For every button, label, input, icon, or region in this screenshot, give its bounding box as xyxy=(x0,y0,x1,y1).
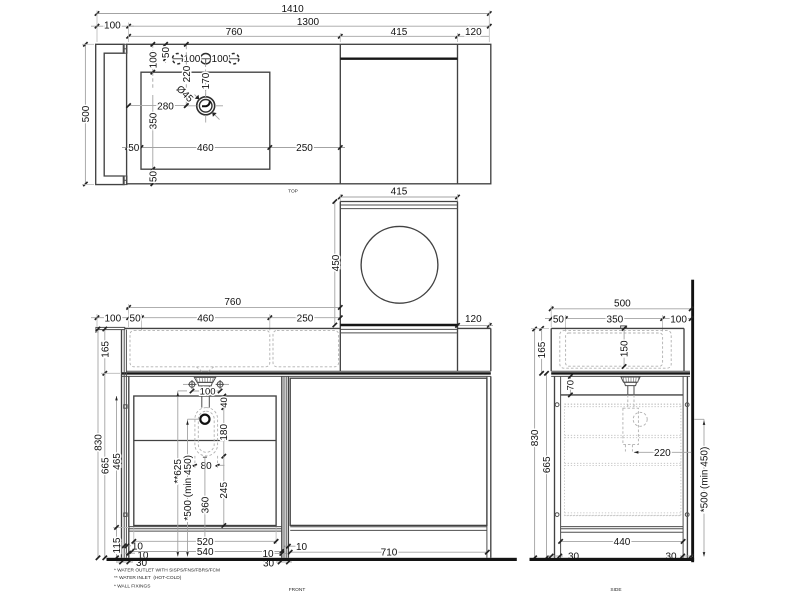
svg-text:830: 830 xyxy=(530,429,541,446)
svg-text:760: 760 xyxy=(224,297,241,308)
svg-text:10: 10 xyxy=(296,542,308,553)
svg-text:100: 100 xyxy=(200,387,216,398)
svg-text:180: 180 xyxy=(219,424,230,441)
svg-text:1300: 1300 xyxy=(297,17,320,28)
svg-text:* WALL FIXINGS: * WALL FIXINGS xyxy=(114,584,150,590)
svg-text:80: 80 xyxy=(201,461,213,472)
svg-text:50: 50 xyxy=(128,143,140,154)
svg-text:50: 50 xyxy=(553,314,565,325)
svg-text:*500 (min 450): *500 (min 450) xyxy=(183,455,194,521)
svg-text:440: 440 xyxy=(614,537,631,548)
svg-text:1410: 1410 xyxy=(281,4,304,15)
svg-text:30: 30 xyxy=(568,552,580,563)
svg-text:*500 (min 450): *500 (min 450) xyxy=(700,447,711,513)
svg-text:* WATER OUTLET WITH SISPS/FNS/: * WATER OUTLET WITH SISPS/FNS/FBRS/FCM xyxy=(114,568,220,574)
svg-text:415: 415 xyxy=(391,187,408,198)
svg-text:500: 500 xyxy=(614,299,631,310)
svg-text:FRONT: FRONT xyxy=(289,587,306,593)
svg-text:250: 250 xyxy=(297,313,314,324)
svg-text:30: 30 xyxy=(665,552,677,563)
svg-text:830: 830 xyxy=(94,434,105,451)
svg-text:710: 710 xyxy=(381,548,398,559)
svg-text:665: 665 xyxy=(100,457,111,474)
svg-text:250: 250 xyxy=(296,143,313,154)
svg-text:100: 100 xyxy=(212,54,229,65)
svg-text:100: 100 xyxy=(670,314,687,325)
svg-text:TOP: TOP xyxy=(288,189,298,195)
svg-text:50: 50 xyxy=(130,313,142,324)
svg-text:350: 350 xyxy=(607,314,624,325)
svg-text:760: 760 xyxy=(226,27,243,38)
svg-text:460: 460 xyxy=(197,143,214,154)
svg-text:245: 245 xyxy=(219,482,230,499)
svg-text:100: 100 xyxy=(104,313,121,324)
svg-text:165: 165 xyxy=(100,341,111,358)
svg-text:220: 220 xyxy=(654,448,671,459)
svg-text:50: 50 xyxy=(148,171,159,183)
svg-text:465: 465 xyxy=(112,453,123,470)
svg-text:** WATER INLET (HOT-COLD): ** WATER INLET (HOT-COLD) xyxy=(114,575,182,581)
svg-text:120: 120 xyxy=(465,314,482,325)
svg-text:500: 500 xyxy=(81,105,92,122)
svg-text:40: 40 xyxy=(219,397,230,408)
svg-text:360: 360 xyxy=(200,496,211,513)
svg-text:460: 460 xyxy=(197,313,214,324)
svg-text:115: 115 xyxy=(112,537,123,553)
svg-text:170: 170 xyxy=(201,72,212,89)
svg-text:450: 450 xyxy=(331,254,342,271)
svg-text:100: 100 xyxy=(104,21,121,32)
svg-text:220: 220 xyxy=(182,65,193,82)
svg-text:540: 540 xyxy=(197,547,214,558)
svg-text:50: 50 xyxy=(161,47,172,59)
svg-text:SIDE: SIDE xyxy=(610,587,621,593)
svg-text:280: 280 xyxy=(157,101,174,112)
svg-text:665: 665 xyxy=(542,456,553,473)
svg-text:350: 350 xyxy=(148,112,159,129)
svg-text:165: 165 xyxy=(537,341,548,358)
svg-text:70: 70 xyxy=(566,380,577,391)
svg-text:120: 120 xyxy=(465,27,482,38)
svg-text:150: 150 xyxy=(620,340,631,357)
svg-text:415: 415 xyxy=(391,27,408,38)
svg-text:100: 100 xyxy=(148,51,159,68)
